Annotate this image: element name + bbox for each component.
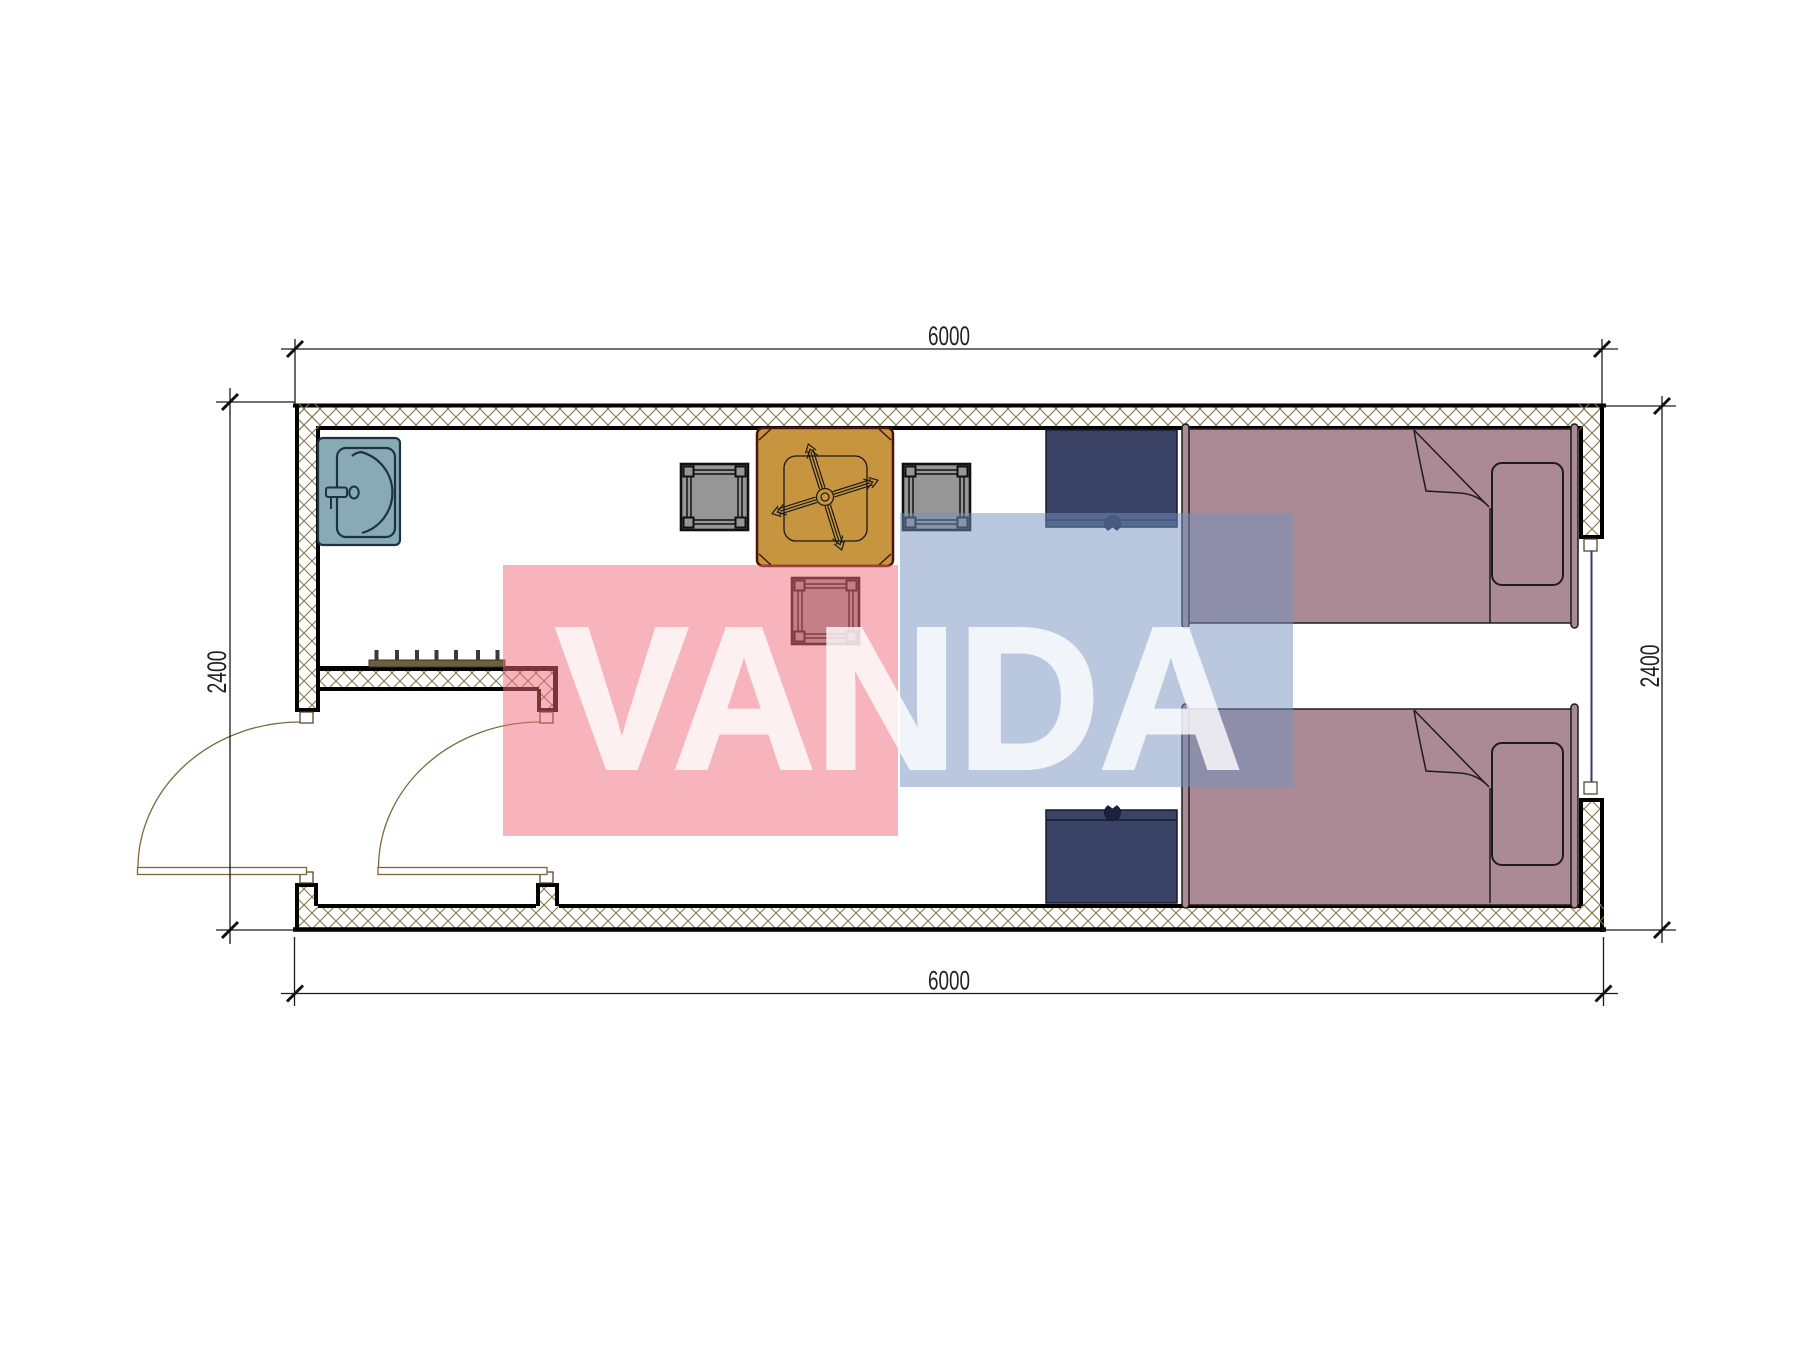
svg-text:6000: 6000 xyxy=(928,966,970,996)
svg-text:6000: 6000 xyxy=(928,321,970,351)
svg-text:VANDA: VANDA xyxy=(556,585,1242,811)
svg-text:2400: 2400 xyxy=(202,651,232,694)
svg-text:2400: 2400 xyxy=(1635,645,1665,688)
